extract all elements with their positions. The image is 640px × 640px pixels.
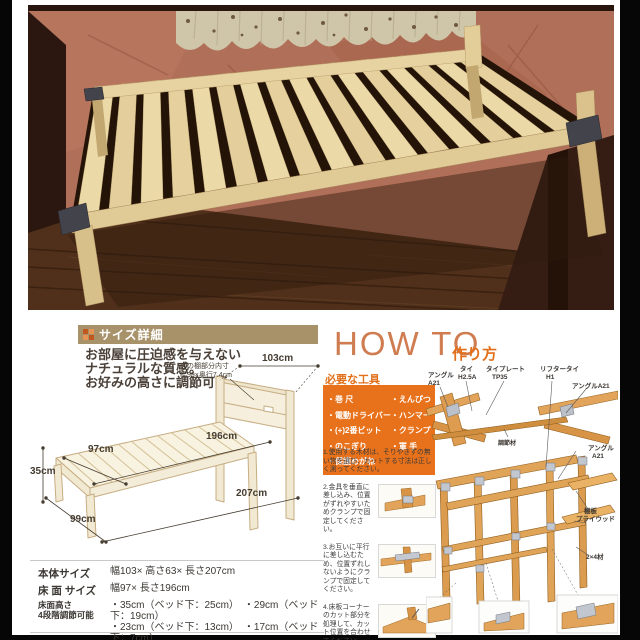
content-card: サイズ詳細 お部屋に圧迫感を与えない ナチュラルな質感。 お好みの高さに調節可能 (12, 0, 620, 635)
bed-photo-illustration (28, 5, 614, 310)
svg-text:TP35: TP35 (492, 374, 508, 381)
step-2: 2.金具を垂直に差し込み、位置がずれやすいためクランプで固定してください。 (323, 484, 437, 535)
dim-top-width: 103cm (262, 353, 293, 364)
dim-height: 35cm (30, 466, 56, 477)
spec-height-label: 床面高さ 4段階調節可能 (38, 600, 110, 640)
svg-text:H1: H1 (546, 374, 555, 381)
svg-text:H2.5A: H2.5A (458, 374, 477, 381)
tool-item: ・ハンマー (391, 408, 431, 424)
dimension-diagram: 103cm 35cm 97cm 196cm 99cm 207cm 宮の棚部分内寸… (30, 350, 324, 558)
dim-total-length: 207cm (236, 488, 267, 499)
part-label-board: 調節材 (498, 439, 516, 447)
dim-inner-width: 97cm (88, 444, 114, 455)
spec-body-value: 幅103× 高さ63× 長さ207cm (110, 566, 235, 581)
part-label-tie-h25a: タイ (460, 364, 473, 373)
product-detail-image: サイズ詳細 お部屋に圧迫感を与えない ナチュラルな質感。 お好みの高さに調節可能 (0, 0, 640, 640)
step-4: 4.床板コーナーのカット部分を処理して、カット位置を合わせてください。 (323, 604, 437, 640)
assembly-steps: 1.使用する木材は、そりやきずの無い物を選び、カットする寸法は正しく測ってくださ… (323, 449, 437, 640)
spec-row-body: 本体サイズ 幅103× 高さ63× 長さ207cm (38, 566, 324, 581)
tool-item: ・電動ドライバー (327, 408, 391, 424)
part-label-angle-a21-2: アングルA21 (572, 381, 610, 390)
spec-surface-value: 幅97× 長さ196cm (110, 583, 190, 598)
part-label-tieplate-tp35: タイプレート (486, 364, 525, 373)
tool-item: ・(+)2番ビット (327, 423, 391, 439)
spec-separator-bottom (30, 632, 324, 633)
spec-surface-label: 床 面 サイズ (38, 583, 110, 598)
step-2-text: 2.金具を垂直に差し込み、位置がずれやすいためクランプで固定してください。 (323, 484, 375, 535)
howto-section: HOW TO 作り方 必要な工具 ・巻 尺 ・電動ドライバー ・(+)2番ビット… (322, 317, 618, 635)
size-detail-section: サイズ詳細 お部屋に圧迫感を与えない ナチュラルな質感。 お好みの高さに調節可能 (30, 317, 324, 635)
part-label-2x4: 2×4材 (586, 552, 604, 561)
svg-text:A21: A21 (428, 380, 440, 387)
spec-table: 本体サイズ 幅103× 高さ63× 長さ207cm 床 面 サイズ 幅97× 長… (38, 566, 324, 640)
shelf-note-line1: 宮の棚部分内寸 (180, 361, 229, 370)
tool-item: ・えんぴつ (391, 392, 431, 408)
part-label-lifter-h1: リフタータイ (540, 364, 579, 373)
part-label-shelf: 棚板 (584, 506, 598, 515)
spec-separator-top (30, 560, 324, 561)
spec-row-height: 床面高さ 4段階調節可能 ・35cm（ベッド下：25cm） ・29cm（ベッド下… (38, 600, 324, 640)
size-section-banner: サイズ詳細 (78, 325, 318, 344)
dim-bottom-width: 99cm (70, 514, 96, 525)
tool-item: ・巻 尺 (327, 392, 391, 408)
spec-body-label: 本体サイズ (38, 566, 110, 581)
svg-text:プライウッド: プライウッド (576, 514, 615, 523)
size-section-title: サイズ詳細 (99, 326, 164, 343)
dim-inner-length: 196cm (206, 431, 237, 442)
spec-row-surface: 床 面 サイズ 幅97× 長さ196cm (38, 583, 324, 598)
step-3-text: 3.お互いに平行に差し込むため、位置ずれしないようにクランプで固定してください。 (323, 544, 375, 595)
svg-text:A21: A21 (592, 453, 604, 460)
step-1-text: 1.使用する木材は、そりやきずの無い物を選び、カットする寸法は正しく測ってくださ… (323, 449, 437, 475)
grid-icon (83, 329, 94, 340)
shelf-note-line2: 幅99×奥行7.4cm (180, 370, 232, 379)
step-4-text: 4.床板コーナーのカット部分を処理して、カット位置を合わせてください。 (323, 604, 375, 640)
assembly-diagram: アングル A21 タイ H2.5A タイプレート TP35 リフタータイ H1 … (426, 351, 618, 635)
part-label-angle-a21: アングル (428, 370, 454, 379)
tool-item: ・クランプ (391, 423, 431, 439)
step-3: 3.お互いに平行に差し込むため、位置ずれしないようにクランプで固定してください。 (323, 544, 437, 595)
bed-photo (28, 5, 614, 310)
part-label-angle-a21-3: アングル (588, 443, 614, 452)
spec-height-value: ・35cm（ベッド下：25cm） ・29cm（ベッド下：19cm） ・23cm（… (110, 600, 324, 640)
